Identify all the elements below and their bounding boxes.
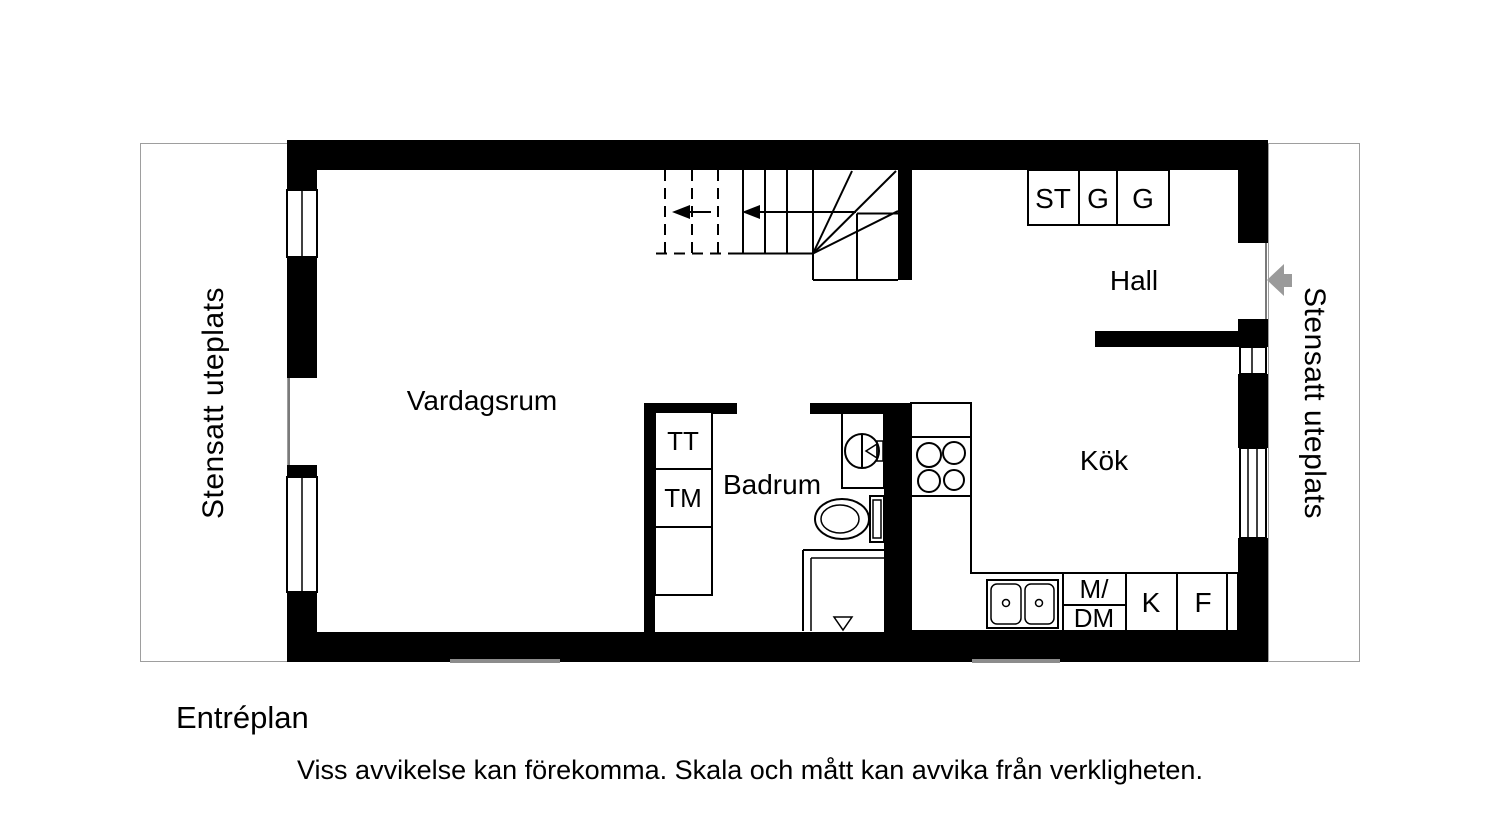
- bathroom-fixtures: [803, 413, 884, 631]
- kitchen-label-dishwasher: DM: [1074, 605, 1114, 631]
- wall-left-seg4: [287, 592, 317, 662]
- wall-right-seg3: [1238, 374, 1268, 448]
- entrance-arrow-icon: [1267, 264, 1292, 296]
- wall-right-seg1: [1238, 140, 1268, 243]
- room-label-bathroom: Badrum: [723, 471, 821, 499]
- wall-left-seg3: [287, 465, 317, 477]
- wall-bottom: [287, 632, 1268, 662]
- wall-right-seg2: [1238, 319, 1268, 347]
- wall-left-seg1: [287, 140, 317, 190]
- room-label-kitchen: Kök: [1080, 447, 1128, 475]
- laundry-label-washer: TM: [664, 485, 702, 511]
- closet-label-g1: G: [1087, 185, 1109, 213]
- window-right-small: [1240, 347, 1266, 374]
- disclaimer-text: Viss avvikelse kan förekomma. Skala och …: [0, 755, 1500, 786]
- stairs: [656, 170, 898, 280]
- kitchen-label-micro: M/: [1080, 576, 1109, 602]
- window-left-lower: [287, 477, 317, 592]
- floorplan-page: Stensatt uteplats Stensatt uteplats: [0, 0, 1500, 833]
- step-right: [972, 659, 1060, 663]
- wall-stair: [898, 170, 912, 280]
- closet-label-g2: G: [1132, 185, 1154, 213]
- kitchen-fixtures: [911, 403, 1238, 631]
- room-label-hall: Hall: [1110, 267, 1158, 295]
- bathroom-sink: [842, 413, 884, 488]
- window-left-upper: [287, 190, 317, 257]
- step-left: [450, 659, 560, 663]
- room-label-living-room: Vardagsrum: [407, 387, 557, 415]
- kitchen-label-fridge: K: [1142, 589, 1161, 617]
- kitchen-label-freezer: F: [1194, 589, 1211, 617]
- toilet: [815, 496, 884, 542]
- wall-bathroom-kitchen: [884, 403, 910, 632]
- wall-hall: [1095, 331, 1238, 347]
- wall-left-seg2: [287, 257, 317, 378]
- wall-top: [287, 140, 1268, 170]
- window-right-large: [1240, 448, 1266, 538]
- wall-right-seg4: [1238, 538, 1268, 662]
- stairs-winders: [813, 171, 898, 280]
- shower: [803, 550, 884, 631]
- floor-title: Entréplan: [176, 701, 309, 735]
- wall-bathroom-left: [644, 403, 655, 632]
- stairs-solid-treads: [736, 170, 813, 280]
- laundry-label-dryer: TT: [667, 428, 699, 454]
- closet-label-st: ST: [1035, 185, 1071, 213]
